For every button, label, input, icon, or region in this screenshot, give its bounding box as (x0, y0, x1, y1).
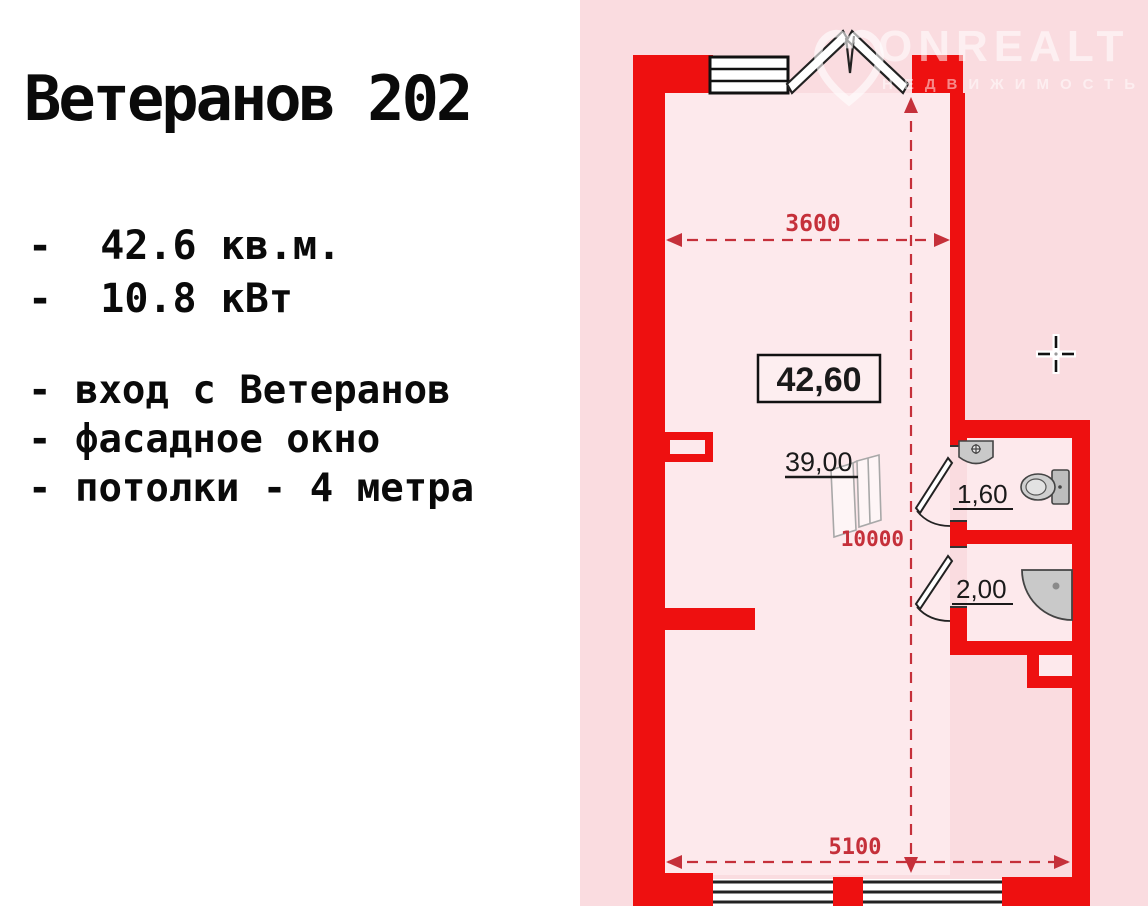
features-list: - вход с Ветеранов - фасадное окно - пот… (28, 366, 474, 513)
window-bottom-left (713, 879, 833, 906)
crosshair-cursor (1036, 334, 1076, 374)
wall-right-upper (950, 93, 965, 438)
entrance-double-door (787, 31, 908, 93)
wall-bottom-right-corner (1002, 877, 1090, 906)
listing-image: Ветеранов 202 - 42.6 кв.м. - 10.8 кВт - … (0, 0, 1148, 906)
dim-height-value: 10000 (841, 527, 904, 551)
dim-top-value: 3600 (785, 211, 840, 237)
wall-bath-bottom (950, 641, 1083, 655)
wall-shaft-bottom (1027, 676, 1090, 688)
floor-plan-drawing: 42,60 39,00 1,60 2,00 3600 (580, 0, 1148, 906)
total-area-label: 42,60 (776, 361, 861, 399)
window-bottom-right (863, 879, 1002, 906)
page-title: Ветеранов 202 (24, 62, 470, 135)
wall-bath-mid (950, 530, 1083, 544)
shower-area-label: 2,00 (956, 574, 1007, 604)
specs-list: - 42.6 кв.м. - 10.8 кВт (28, 220, 341, 326)
window-top (710, 57, 788, 93)
wall-bath-top (950, 420, 1090, 438)
wall-left (633, 55, 665, 906)
wall-stub (633, 608, 755, 630)
feature-ceiling: - потолки - 4 метра (28, 464, 474, 513)
wc-area-label: 1,60 (957, 479, 1008, 509)
spec-area: - 42.6 кв.м. (28, 220, 341, 273)
floor-plan-panel: 42,60 39,00 1,60 2,00 3600 (580, 0, 1148, 906)
info-panel: Ветеранов 202 - 42.6 кв.м. - 10.8 кВт - … (0, 0, 580, 906)
wall-right-lower (1072, 438, 1090, 906)
wardrobe-label: 39,00 (785, 447, 853, 477)
wall-top-left (633, 55, 713, 93)
spec-power: - 10.8 кВт (28, 273, 341, 326)
wall-bottom-left-corner (633, 873, 713, 906)
feature-entrance: - вход с Ветеранов (28, 366, 474, 415)
sink (959, 441, 993, 464)
wall-bottom-pier (833, 877, 863, 906)
total-area-box: 42,60 (758, 355, 880, 402)
wall-top-right-block (912, 55, 963, 93)
feature-window: - фасадное окно (28, 415, 474, 464)
dim-bottom-value: 5100 (829, 835, 882, 860)
